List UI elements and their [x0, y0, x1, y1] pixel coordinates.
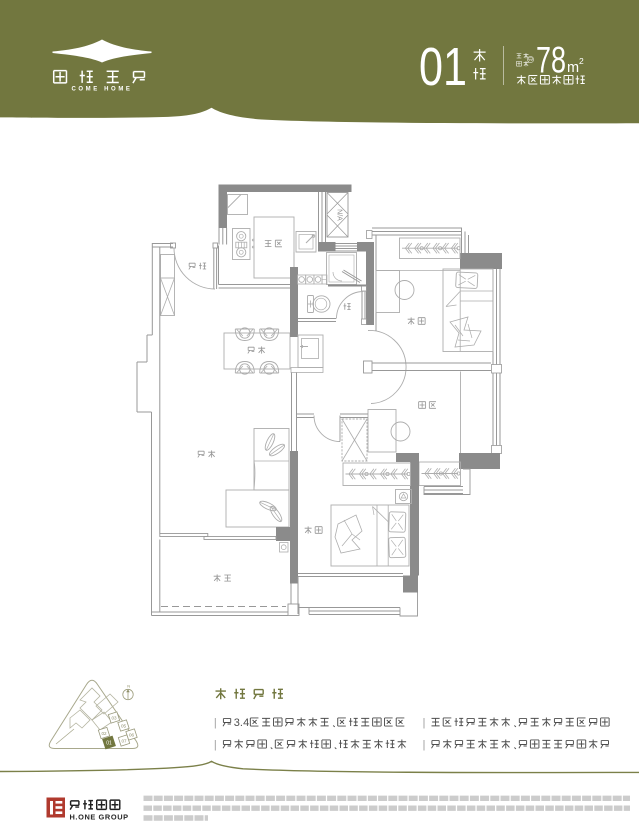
svg-text:78: 78 [536, 40, 566, 81]
svg-text:07: 07 [121, 738, 127, 743]
svg-text:01: 01 [419, 37, 467, 97]
svg-text:m: m [567, 60, 579, 76]
svg-text:COME HOME: COME HOME [71, 87, 132, 93]
svg-text:02: 02 [101, 731, 107, 736]
svg-text:05: 05 [121, 723, 127, 728]
svg-text:06: 06 [129, 732, 135, 737]
svg-text:03: 03 [111, 715, 117, 720]
svg-text:H.ONE GROUP: H.ONE GROUP [70, 812, 129, 821]
svg-text:01: 01 [106, 741, 112, 747]
svg-text:4: 4 [243, 717, 249, 729]
svg-text:N: N [127, 684, 130, 689]
svg-text:2: 2 [579, 56, 584, 66]
svg-text:N/A: N/A [336, 209, 343, 221]
